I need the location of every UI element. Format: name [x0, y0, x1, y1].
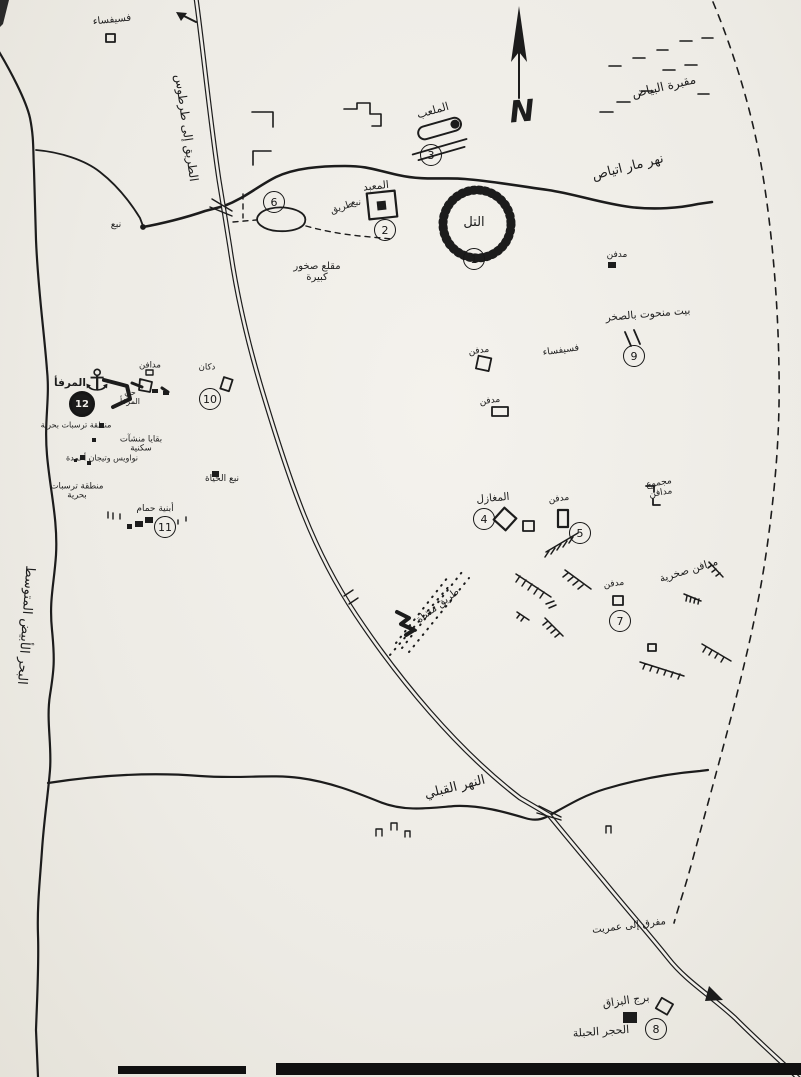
spring-dot: [141, 225, 146, 230]
label-marine-deposits-1: منطقة ترسبات بحرية: [41, 422, 112, 431]
temple-shape: [367, 191, 398, 220]
ruin-marks: [376, 823, 611, 837]
label-coast-spring: نبع: [111, 220, 122, 230]
map-canvas: البحر الأبيض المتوسط الطريق إلى طرطوس نه…: [0, 0, 801, 1077]
label-sarcophagi: نواويس وتيجان أعمدة: [66, 455, 138, 464]
pond-shape: [257, 207, 305, 231]
label-shop: دكان: [199, 363, 216, 372]
label-tombs-10: مدافن: [139, 361, 161, 370]
cemetery-dashes: [600, 38, 713, 112]
label-life-spring: نبع الحياة: [205, 475, 239, 485]
marker-12: 12: [69, 391, 95, 417]
label-residential-remains: بقايا منشآت سكنية: [113, 436, 169, 455]
coast-stream: [36, 150, 143, 226]
label-harbor: المرفأ: [54, 378, 86, 390]
junction-hatches: [210, 199, 561, 820]
label-baths: أبنية حمام: [136, 505, 173, 515]
road-direction-arrow: [176, 12, 196, 22]
marker-7: 7: [609, 610, 631, 632]
marker-6: 6: [263, 191, 285, 213]
label-harbor-quarter: حي المرفأ: [114, 389, 146, 407]
marker-3: 3: [420, 144, 442, 166]
road-infill: [196, 0, 800, 1077]
bottom-border: [118, 1063, 801, 1075]
map-drawing: [0, 0, 801, 1077]
boundary-dashed: [674, 2, 779, 923]
marker-8: 8: [645, 1018, 667, 1040]
marker-5: 5: [569, 522, 591, 544]
marker-11: 11: [154, 516, 176, 538]
corner-mark: [0, 0, 9, 27]
marker-10: 10: [199, 388, 221, 410]
south-river-line: [48, 770, 708, 820]
road-casing: [196, 0, 800, 1077]
coastline: [0, 50, 56, 1077]
marker-9: 9: [623, 345, 645, 367]
label-tomb-a: مدفن: [607, 251, 628, 261]
label-tell: التل: [463, 216, 484, 230]
marker-2: 2: [374, 219, 396, 241]
marker-4: 4: [473, 508, 495, 530]
label-marine-deposits-2: منطقة ترسبات بحرية: [48, 483, 106, 502]
compass-n-letter: N: [508, 94, 536, 129]
road-arrowhead: [705, 986, 723, 1001]
marker-1: 1: [463, 248, 485, 270]
compass-arrow: [511, 6, 527, 98]
building-outlines: [252, 103, 381, 165]
label-quarry: مقلع صخور كبيرة: [285, 261, 349, 283]
